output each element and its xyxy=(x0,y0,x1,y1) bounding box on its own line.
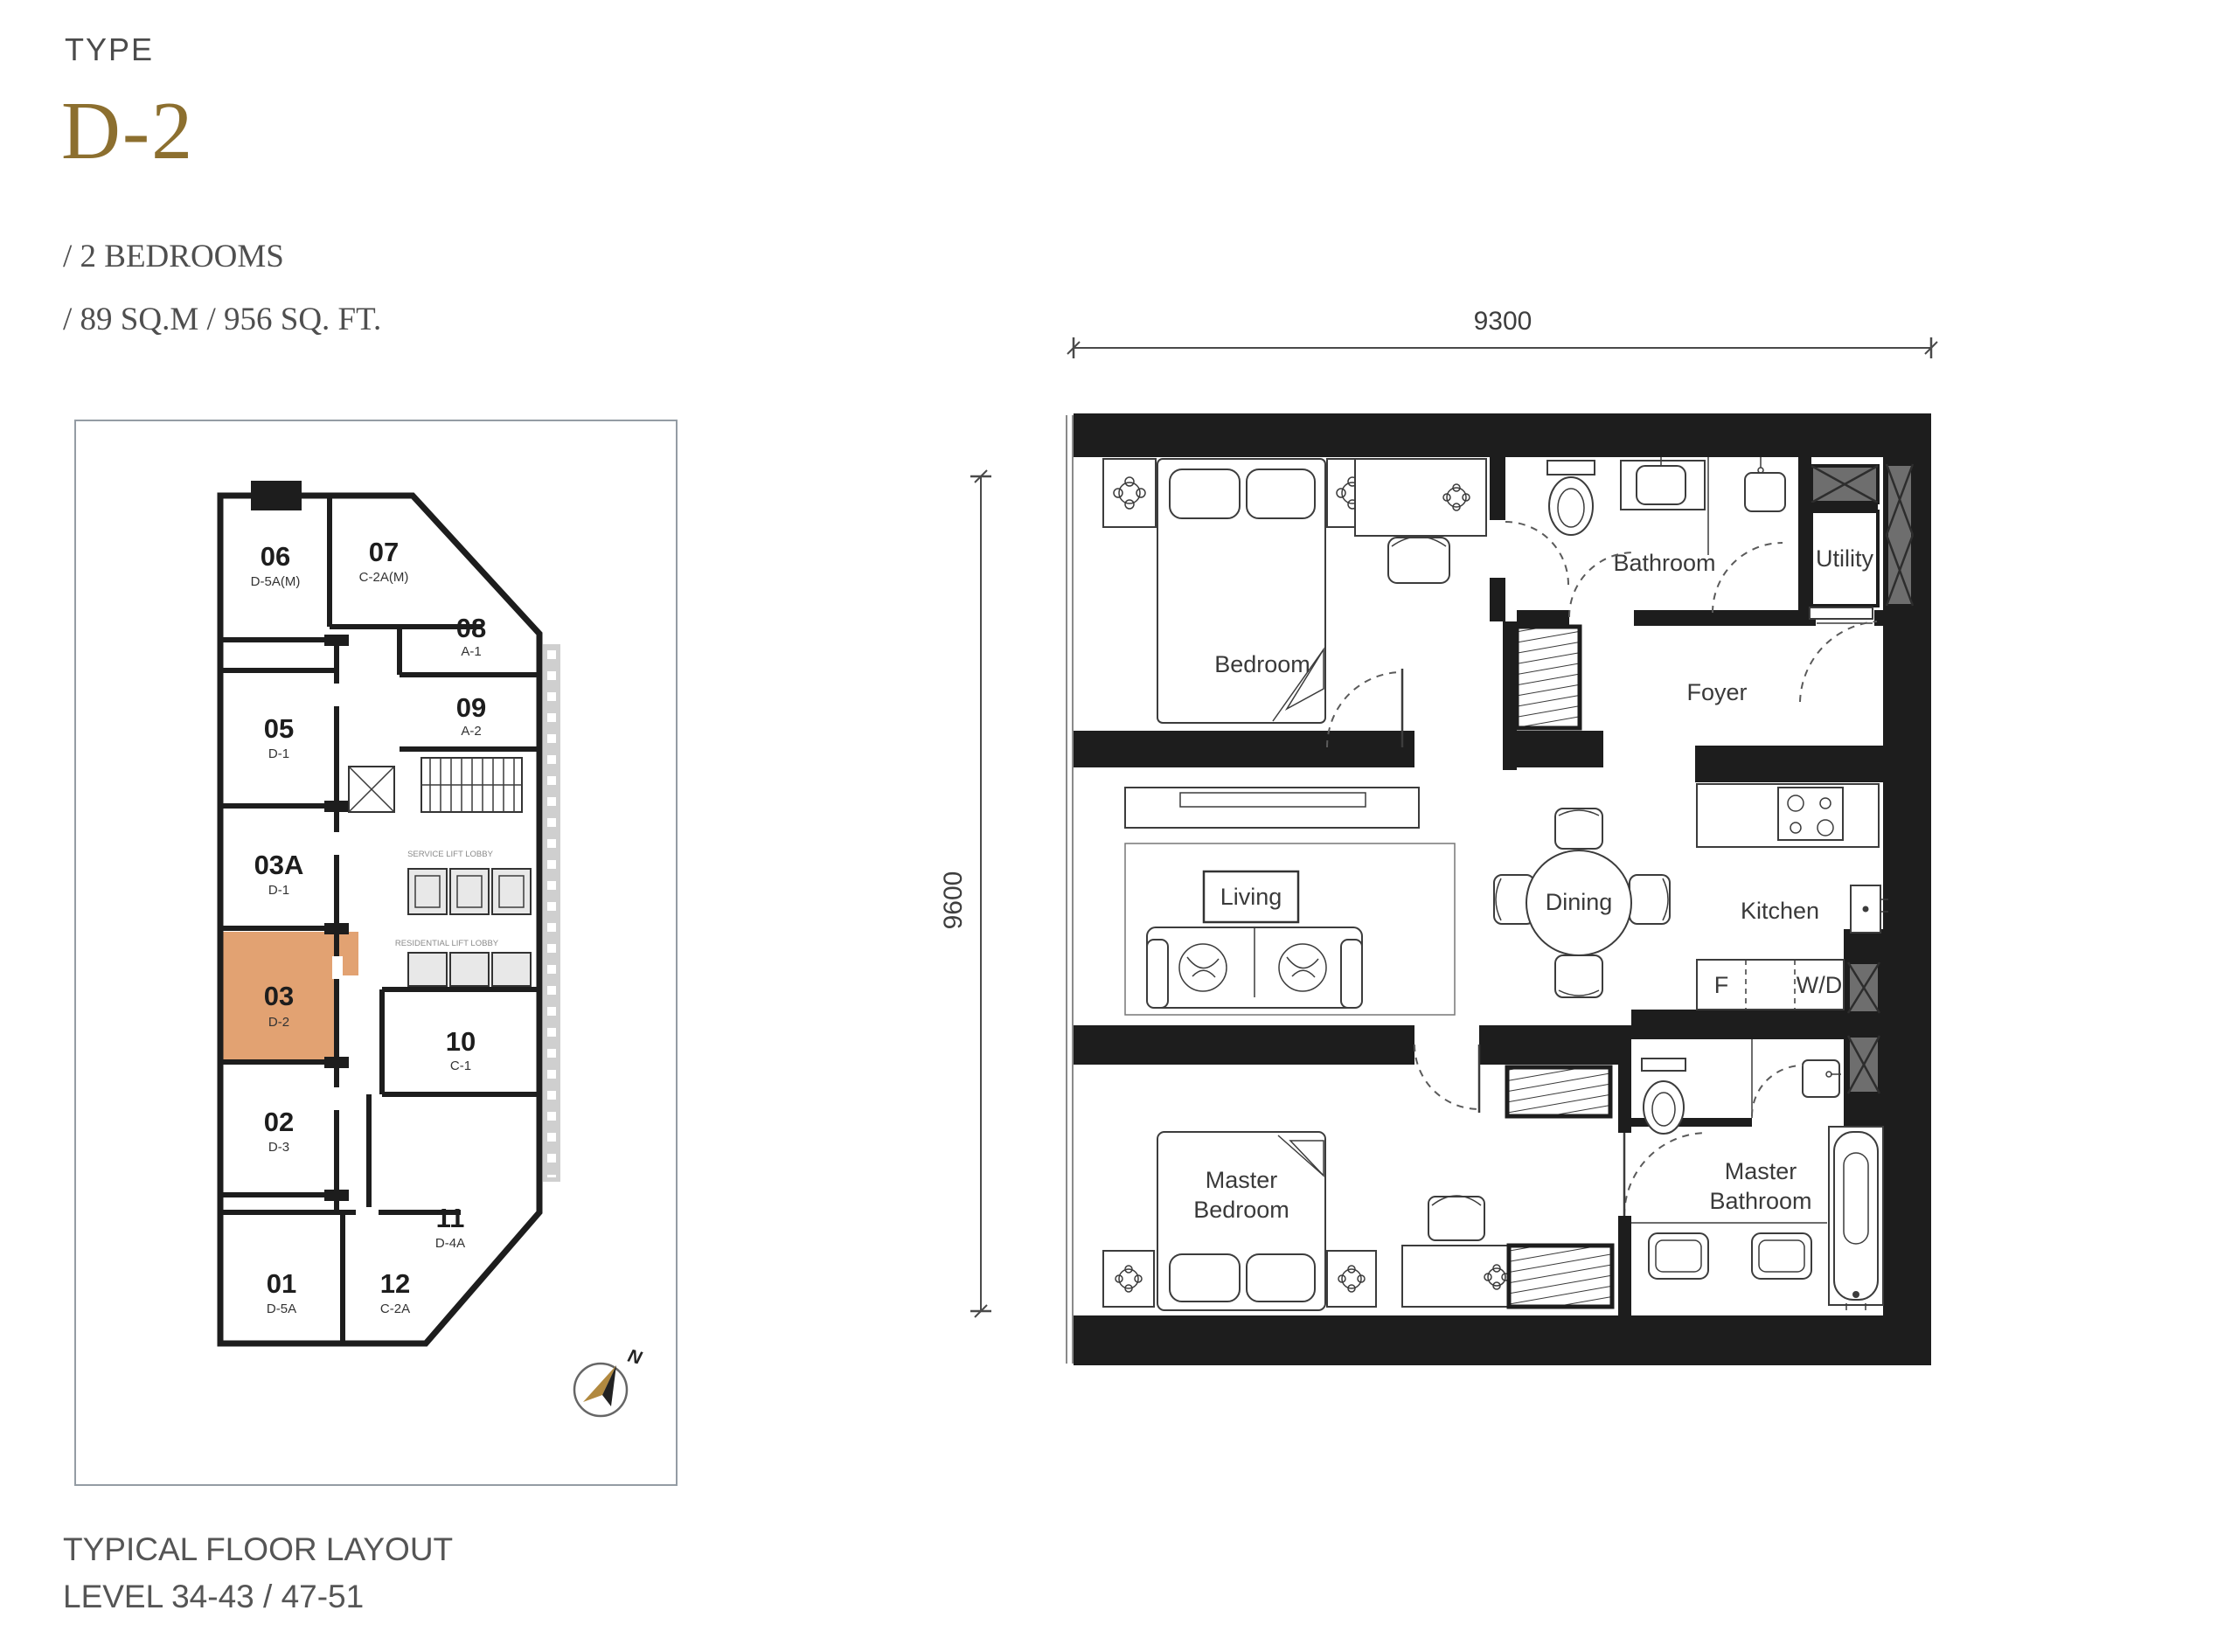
chair-icon xyxy=(1388,537,1449,583)
key-plan-outline xyxy=(220,496,539,1343)
area-line: / 89 SQ.M / 956 SQ. FT. xyxy=(63,301,381,338)
unit-06: 06 xyxy=(261,541,290,572)
living-label: Living xyxy=(1220,884,1282,910)
bedrooms-line: / 2 BEDROOMS xyxy=(63,238,284,275)
shower-basin-icon xyxy=(1803,1060,1841,1097)
room-master-bedroom: Master Bedroom xyxy=(1103,1132,1612,1310)
sink-icon xyxy=(1752,1233,1811,1279)
shower-basin-icon xyxy=(1745,457,1785,511)
svg-text:D-5A(M): D-5A(M) xyxy=(251,574,301,589)
bedroom-label: Bedroom xyxy=(1214,651,1310,677)
nightstand-icon xyxy=(1327,1251,1376,1307)
master-bathroom-label-1: Master xyxy=(1725,1158,1797,1184)
unit-12: 12 xyxy=(380,1268,410,1299)
svg-text:A-1: A-1 xyxy=(461,644,481,659)
svg-text:A-2: A-2 xyxy=(461,724,481,739)
bathtub-icon xyxy=(1829,1127,1883,1310)
shaft-icon xyxy=(1887,464,1913,606)
typical-floor-layout-label: TYPICAL FLOOR LAYOUT xyxy=(63,1531,453,1568)
sofa-icon xyxy=(1147,927,1362,1008)
key-plan-box: SERVICE LIFT LOBBY RESIDENTIAL LIFT LOBB… xyxy=(74,420,678,1486)
bed-icon xyxy=(1157,459,1325,723)
svg-text:D-5A: D-5A xyxy=(267,1301,296,1316)
unit-03-highlighted: 03 xyxy=(264,981,294,1011)
kitchen-label: Kitchen xyxy=(1741,898,1819,924)
hallway-wardrobe-icon xyxy=(1505,522,1580,728)
master-bedroom-door-arc xyxy=(1414,1045,1479,1109)
residential-lift-lobby-label: RESIDENTIAL LIFT LOBBY xyxy=(395,939,499,948)
master-bedroom-label-2: Bedroom xyxy=(1193,1197,1289,1223)
key-plan-walls xyxy=(220,496,539,1343)
dimension-left: 9600 xyxy=(939,470,991,1317)
key-plan-notch xyxy=(251,481,302,510)
floorplan-page: TYPE D-2 / 2 BEDROOMS / 89 SQ.M / 956 SQ… xyxy=(0,0,2238,1652)
unit-03A: 03A xyxy=(254,850,304,880)
fridge-label: F xyxy=(1714,972,1729,998)
svg-text:C-2A: C-2A xyxy=(380,1301,410,1316)
master-bedroom-label-1: Master xyxy=(1206,1167,1278,1193)
svg-text:D-2: D-2 xyxy=(268,1015,289,1030)
room-bathroom: Bathroom xyxy=(1547,457,1785,617)
desk-icon xyxy=(1402,1246,1518,1307)
entry-door-arc xyxy=(1800,621,1877,702)
dim-left-label: 9600 xyxy=(939,871,968,930)
desk-icon xyxy=(1355,459,1486,536)
master-bathroom-label-2: Bathroom xyxy=(1709,1188,1811,1214)
stove-icon xyxy=(1778,788,1843,840)
unit-08: 08 xyxy=(456,613,486,643)
master-bathroom-door-arc xyxy=(1624,1133,1707,1216)
entry-door-leaf xyxy=(1810,607,1873,619)
key-plan-core: SERVICE LIFT LOBBY RESIDENTIAL LIFT LOBB… xyxy=(349,758,531,986)
shower-door-arc xyxy=(1713,543,1783,613)
shaft-icon xyxy=(1811,466,1878,503)
svg-text:D-1: D-1 xyxy=(268,883,289,898)
unit-02: 02 xyxy=(264,1107,294,1137)
unit-type-title: D-2 xyxy=(61,84,194,178)
unit-05: 05 xyxy=(264,713,294,744)
kitchen-sink-icon xyxy=(1851,885,1888,933)
utility-label: Utility xyxy=(1816,545,1873,572)
key-plan-ledge-strip xyxy=(543,644,560,1182)
svg-text:C-1: C-1 xyxy=(450,1059,471,1073)
dining-label: Dining xyxy=(1546,889,1613,915)
dimension-top: 9300 xyxy=(1067,307,1937,358)
foyer-label: Foyer xyxy=(1686,679,1747,705)
key-plan-drawing: SERVICE LIFT LOBBY RESIDENTIAL LIFT LOBB… xyxy=(76,421,676,1484)
dining-chair-icon xyxy=(1630,875,1670,924)
shower-door-arc xyxy=(1752,1065,1803,1116)
room-bedroom: Bedroom xyxy=(1103,459,1486,747)
unit-10: 10 xyxy=(446,1026,476,1057)
shaft-icon xyxy=(1848,1036,1880,1093)
room-living: Living xyxy=(1125,788,1455,1015)
dining-chair-icon xyxy=(1555,955,1602,997)
sink-icon xyxy=(1649,1233,1708,1279)
svg-text:C-2A(M): C-2A(M) xyxy=(359,570,409,585)
dining-chair-icon xyxy=(1555,809,1602,849)
appliance-counter: F W/D xyxy=(1697,960,1844,1010)
svg-text:D-1: D-1 xyxy=(268,746,289,761)
unit-07: 07 xyxy=(369,537,399,567)
shaft-icon xyxy=(1848,962,1880,1013)
svg-text:D-3: D-3 xyxy=(268,1140,289,1155)
tv-console-icon xyxy=(1125,788,1419,828)
bathroom-label: Bathroom xyxy=(1613,550,1715,576)
nightstand-icon xyxy=(1103,459,1156,527)
unit-11: 11 xyxy=(436,1203,465,1233)
wardrobe-icon xyxy=(1509,1246,1612,1307)
room-dining: Dining xyxy=(1494,809,1670,997)
washer-dryer-label: W/D xyxy=(1797,972,1842,998)
toilet-icon xyxy=(1642,1059,1685,1134)
main-floor-plan: 9300 9600 xyxy=(927,293,2081,1412)
nightstand-icon xyxy=(1103,1251,1154,1307)
levels-label: LEVEL 34-43 / 47-51 xyxy=(63,1579,364,1615)
unit-01: 01 xyxy=(267,1268,296,1299)
north-compass-icon: N xyxy=(574,1346,644,1416)
toilet-icon xyxy=(1547,461,1595,535)
unit-plan: Bedroom xyxy=(1067,413,1931,1365)
facade-window-line xyxy=(1067,415,1073,1364)
compass-n-label: N xyxy=(626,1346,644,1369)
chair-icon xyxy=(1428,1196,1484,1240)
unit-09: 09 xyxy=(456,692,486,723)
vanity-sink-icon xyxy=(1621,457,1705,510)
room-utility: Utility xyxy=(1811,511,1878,623)
svg-text:D-4A: D-4A xyxy=(435,1236,465,1251)
type-label: TYPE xyxy=(65,31,154,68)
hall-closet-icon xyxy=(1507,1067,1610,1116)
dim-top-label: 9300 xyxy=(1474,307,1533,336)
service-lift-lobby-label: SERVICE LIFT LOBBY xyxy=(407,850,494,859)
